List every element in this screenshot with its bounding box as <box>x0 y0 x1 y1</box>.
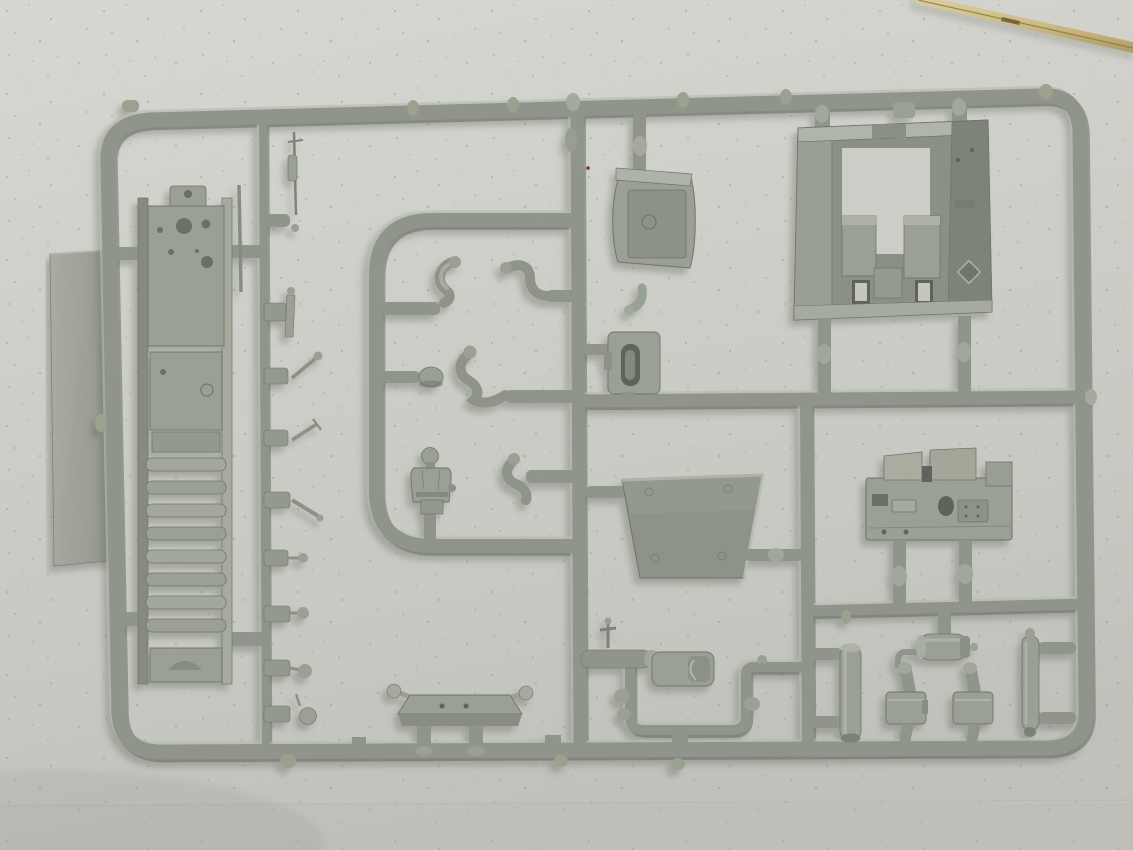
debris-speck <box>586 166 590 170</box>
sprue-photo-canvas <box>0 0 1133 850</box>
photo-grain <box>0 0 1133 850</box>
photo-of-model-kit-sprue <box>0 0 1133 850</box>
